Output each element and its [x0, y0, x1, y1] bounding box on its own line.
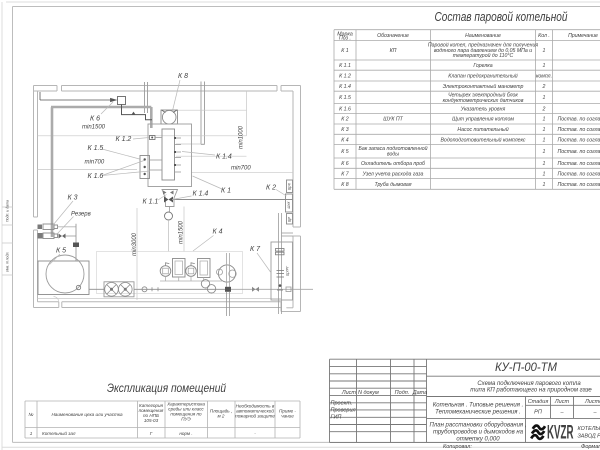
svg-text:Постав. по соглас: Постав. по соглас: [558, 117, 600, 123]
svg-text:1: 1: [543, 63, 546, 69]
svg-text:отметку 0,000: отметку 0,000: [456, 437, 500, 443]
svg-text:1: 1: [543, 137, 546, 143]
svg-text:компл.: компл.: [536, 74, 552, 80]
svg-text:КОТЕЛЬНЫЙ: КОТЕЛЬНЫЙ: [578, 424, 600, 432]
svg-text:ПУЭ: ПУЭ: [181, 417, 191, 422]
svg-text:К 1.4: К 1.4: [216, 154, 232, 161]
svg-text:К 2: К 2: [266, 185, 276, 192]
svg-text:К 3: К 3: [341, 127, 348, 133]
svg-text:Схема подключения парового: Схема подключения парового котла: [477, 381, 581, 387]
svg-text:типа КП работающего на при: типа КП работающего на природном газе: [470, 388, 592, 394]
svg-text:Подп.: Подп.: [395, 390, 410, 396]
svg-text:Постав. по соглас: Постав. по соглас: [558, 161, 600, 167]
svg-text:min3000: min3000: [132, 232, 138, 256]
svg-text:Щит управления котлом: Щит управления котлом: [452, 117, 514, 123]
svg-text:ШУК ПТ: ШУК ПТ: [383, 117, 403, 123]
svg-text:Постав. по соглас: Постав. по соглас: [558, 127, 600, 133]
svg-text:Дата: Дата: [412, 390, 428, 396]
svg-text:пожарной защите: пожарной защите: [235, 413, 275, 419]
svg-text:min1500: min1500: [179, 220, 185, 244]
svg-text:РП: РП: [534, 410, 542, 416]
svg-text:К 1.4: К 1.4: [339, 84, 351, 90]
svg-text:К 5: К 5: [56, 248, 66, 255]
svg-text:м 2: м 2: [218, 414, 225, 419]
svg-text:ШУК: ШУК: [287, 201, 291, 209]
svg-text:1: 1: [543, 171, 546, 177]
svg-text:К 3: К 3: [68, 195, 78, 202]
svg-text:min1000: min1000: [239, 125, 245, 149]
svg-text:Формат: Формат: [581, 444, 600, 450]
svg-text:Тепломеханические решения .: Тепломеханические решения .: [435, 410, 521, 416]
svg-text:Узел учета расхода газа: Узел учета расхода газа: [363, 171, 424, 177]
svg-text:Электроконтактный манометр: Электроконтактный манометр: [443, 83, 524, 90]
svg-text:1: 1: [543, 48, 546, 54]
svg-text:Подп. и дата: Подп. и дата: [6, 200, 10, 222]
svg-text:К 1.1: К 1.1: [339, 63, 351, 69]
svg-text:К 7: К 7: [250, 246, 261, 253]
svg-text:норм .: норм .: [179, 431, 192, 436]
svg-text:ЗАВОД РОСС: ЗАВОД РОСС: [578, 434, 600, 440]
svg-text:Кол .: Кол .: [538, 33, 550, 39]
svg-text:№: №: [29, 412, 34, 417]
svg-text:2: 2: [542, 106, 546, 112]
svg-text:Постав. по соглас: Постав. по соглас: [558, 149, 600, 155]
svg-text:Инв. N подл.: Инв. N подл.: [6, 252, 10, 272]
svg-text:Котельная . Типовые решения .: Котельная . Типовые решения .: [433, 403, 524, 409]
svg-text:Постав. по соглас: Постав. по соглас: [558, 171, 600, 177]
svg-text:Горелка: Горелка: [473, 63, 492, 69]
svg-text:Поз .: Поз .: [339, 36, 351, 42]
svg-text:Постав. по соглас: Постав. по соглас: [558, 137, 600, 143]
svg-text:К 4: К 4: [341, 137, 348, 143]
svg-text:Водоподготовительный комплекс: Водоподготовительный комплекс: [440, 136, 525, 143]
svg-text:ЩР: ЩР: [288, 216, 292, 222]
svg-text:Лист: Лист: [554, 399, 570, 405]
svg-text:воды: воды: [387, 152, 399, 158]
svg-text:К 5: К 5: [341, 149, 348, 155]
svg-text:Наименование: Наименование: [465, 33, 501, 39]
svg-text:Лист: Лист: [341, 390, 357, 396]
svg-text:ЩУК: ЩУК: [288, 182, 292, 190]
svg-text:Клапан предохранительный: Клапан предохранительный: [448, 73, 518, 80]
svg-text:КУ-П-00-ТМ: КУ-П-00-ТМ: [495, 360, 557, 374]
svg-text:min700: min700: [231, 166, 251, 172]
svg-text:N докум: N докум: [358, 390, 379, 396]
svg-text:Стадия: Стадия: [528, 399, 549, 405]
svg-text:105-03: 105-03: [144, 418, 159, 423]
svg-text:min700: min700: [85, 160, 105, 166]
svg-text:Листов: Листов: [584, 399, 600, 405]
svg-text:1: 1: [543, 161, 546, 167]
svg-text:Указатель уровня: Указатель уровня: [461, 106, 506, 112]
svg-text:К 6: К 6: [90, 116, 100, 123]
svg-text:КП: КП: [390, 48, 397, 54]
svg-text:К 7: К 7: [341, 171, 349, 177]
svg-text:трубопроводов и дымоходов н: трубопроводов и дымоходов на: [433, 430, 524, 436]
svg-text:К 8: К 8: [341, 182, 348, 188]
svg-text:Проект.: Проект.: [331, 401, 353, 407]
svg-text:К 4: К 4: [213, 229, 223, 236]
svg-text:Состав паровой котельной: Состав паровой котельной: [435, 9, 568, 24]
svg-text:Обозначение: Обозначение: [377, 33, 409, 39]
svg-text:2: 2: [542, 84, 546, 90]
svg-text:1: 1: [543, 127, 546, 133]
svg-text:Труба дымовая: Труба дымовая: [374, 182, 411, 188]
svg-text:1: 1: [543, 95, 546, 101]
svg-text:Котельный зал: Котельный зал: [42, 430, 76, 436]
svg-text:К 2: К 2: [341, 117, 348, 123]
svg-text:1: 1: [30, 431, 33, 436]
svg-text:ГИП: ГИП: [331, 415, 342, 421]
svg-text:температурой до 110°С: температурой до 110°С: [453, 52, 514, 59]
svg-text:К 8: К 8: [178, 73, 188, 80]
svg-text:К 1: К 1: [221, 188, 231, 195]
svg-text:Экспликация помещений: Экспликация помещений: [107, 383, 227, 395]
svg-text:К 1.5: К 1.5: [88, 145, 104, 152]
svg-text:К 6: К 6: [341, 161, 348, 167]
svg-text:KVZR: KVZR: [547, 423, 574, 444]
svg-text:План расстановки оборудовани: План расстановки оборудования ,: [430, 423, 527, 429]
svg-text:Копировал:: Копировал:: [443, 444, 472, 450]
svg-text:ЩУРГ: ЩУРГ: [286, 265, 290, 276]
svg-text:Проверил: Проверил: [331, 408, 356, 414]
svg-text:К 1: К 1: [341, 48, 348, 54]
svg-text:К 1.1: К 1.1: [143, 199, 159, 206]
svg-text:1: 1: [543, 182, 546, 188]
svg-text:К 1.2: К 1.2: [116, 136, 132, 143]
svg-text:Охладитель отбора проб: Охладитель отбора проб: [361, 161, 426, 167]
svg-text:Примечание: Примечание: [568, 33, 598, 39]
svg-text:К 1.5: К 1.5: [339, 95, 351, 101]
svg-text:Наименование цеха или участ: Наименование цеха или участка: [51, 412, 123, 417]
svg-text:кондуктометрических датчиков: кондуктометрических датчиков: [443, 98, 524, 104]
svg-text:Резерв: Резерв: [71, 212, 91, 218]
svg-text:1: 1: [543, 149, 546, 155]
svg-text:К 1.6: К 1.6: [339, 106, 351, 112]
svg-text:Постав. по соглас: Постав. по соглас: [558, 182, 600, 188]
svg-text:К 1.2: К 1.2: [339, 74, 351, 80]
svg-text:чание: чание: [281, 414, 294, 419]
svg-text:Насос питательный: Насос питательный: [457, 126, 508, 133]
svg-text:К 1.4: К 1.4: [193, 191, 209, 198]
svg-text:min1500: min1500: [82, 125, 106, 131]
svg-text:1: 1: [543, 117, 546, 123]
svg-text:К 1.6: К 1.6: [88, 173, 104, 180]
